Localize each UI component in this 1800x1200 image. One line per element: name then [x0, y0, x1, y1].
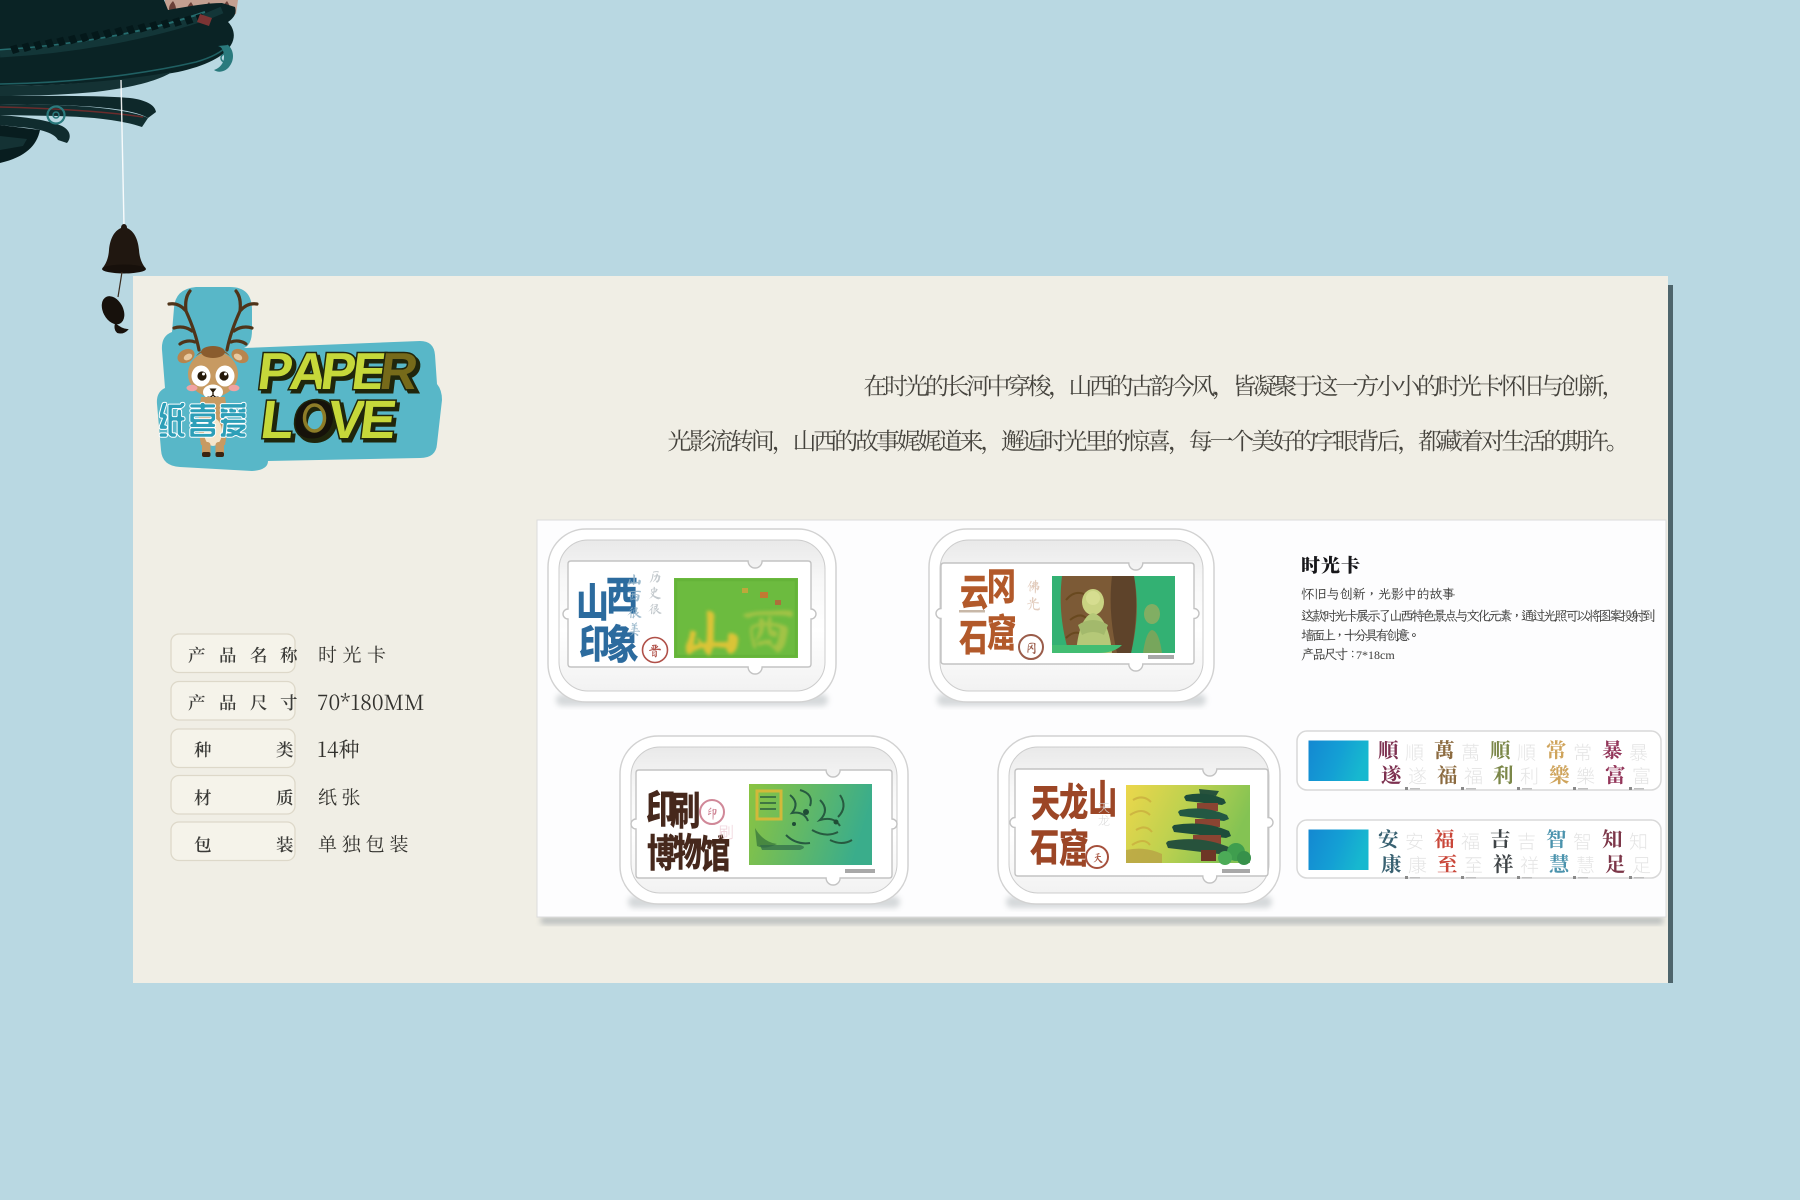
svg-text:E: E — [357, 390, 400, 450]
svg-text:7*18cm: 7*18cm — [1356, 648, 1395, 662]
